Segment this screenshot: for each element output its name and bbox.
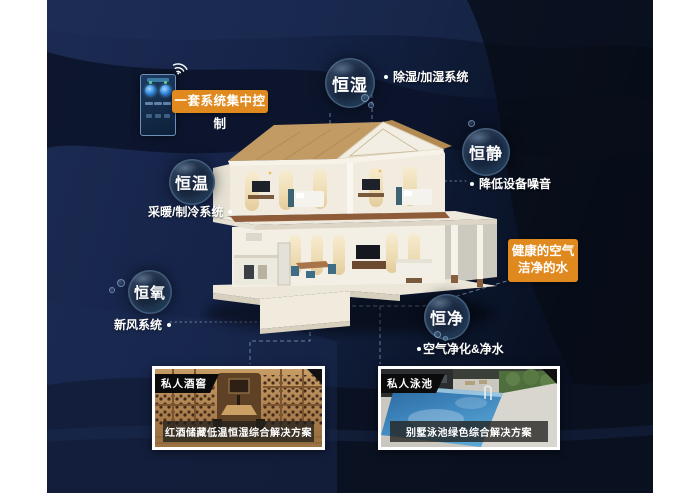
mini-bubble xyxy=(117,279,125,287)
phone-buttons xyxy=(146,114,170,118)
bubble-constant-quiet: 恒静 xyxy=(462,128,510,176)
wine-cellar-photo-card: 私人酒窖 红酒储藏低温恒湿综合解决方案 xyxy=(152,366,325,450)
bullet-dot xyxy=(384,75,388,79)
wine-cellar-caption: 红酒储藏低温恒湿综合解决方案 xyxy=(163,421,313,442)
note-heating-cooling-system: 采暖/制冷系统 xyxy=(148,203,232,220)
wifi-icon xyxy=(170,59,188,75)
bubble-constant-oxygen: 恒氧 xyxy=(128,270,172,314)
temperature-knob-icon xyxy=(145,85,156,96)
corner-ribbon xyxy=(307,369,322,384)
mini-bubble xyxy=(468,120,475,127)
mini-bubble xyxy=(368,102,374,108)
pool-tag: 私人泳池 xyxy=(381,374,445,393)
smart-home-infographic: 一套系统集中控制 健康的空气 洁净的水 恒湿 恒静 恒温 恒氧 恒净 除湿/加湿… xyxy=(0,0,700,497)
healthy-air-line: 健康的空气 xyxy=(508,243,578,260)
central-control-label: 一套系统集中控制 xyxy=(172,90,268,113)
phone-readouts xyxy=(145,102,171,105)
note-fresh-air-system: 新风系统 xyxy=(114,316,171,333)
corner-ribbon xyxy=(542,369,557,384)
bullet-dot xyxy=(417,347,421,351)
phone-knobs xyxy=(143,85,173,96)
bullet-dot xyxy=(470,182,474,186)
mini-bubble xyxy=(109,287,115,293)
note-air-purification-water: 空气净化&净水 xyxy=(417,340,504,357)
note-dehumidify-humidify-system: 除湿/加湿系统 xyxy=(384,68,468,85)
mini-bubble xyxy=(434,331,441,338)
mini-bubble xyxy=(361,94,369,102)
wine-cellar-photo: 私人酒窖 红酒储藏低温恒湿综合解决方案 xyxy=(155,369,322,447)
humidity-knob-icon xyxy=(160,85,171,96)
bubble-constant-purity: 恒净 xyxy=(424,294,470,340)
pool-photo-card: 私人泳池 别墅泳池绿色综合解决方案 xyxy=(378,366,560,450)
healthy-air-water-label: 健康的空气 洁净的水 xyxy=(508,239,578,282)
pool-caption: 别墅泳池绿色综合解决方案 xyxy=(390,421,548,442)
bubble-constant-temperature: 恒温 xyxy=(169,159,215,205)
bullet-dot xyxy=(228,210,232,214)
smart-panel-phone xyxy=(140,74,176,136)
clean-water-line: 洁净的水 xyxy=(508,260,578,277)
bullet-dot xyxy=(167,323,171,327)
pool-photo: 私人泳池 别墅泳池绿色综合解决方案 xyxy=(381,369,557,447)
wine-cellar-tag: 私人酒窖 xyxy=(155,374,219,393)
note-reduce-equipment-noise: 降低设备噪音 xyxy=(470,175,551,192)
